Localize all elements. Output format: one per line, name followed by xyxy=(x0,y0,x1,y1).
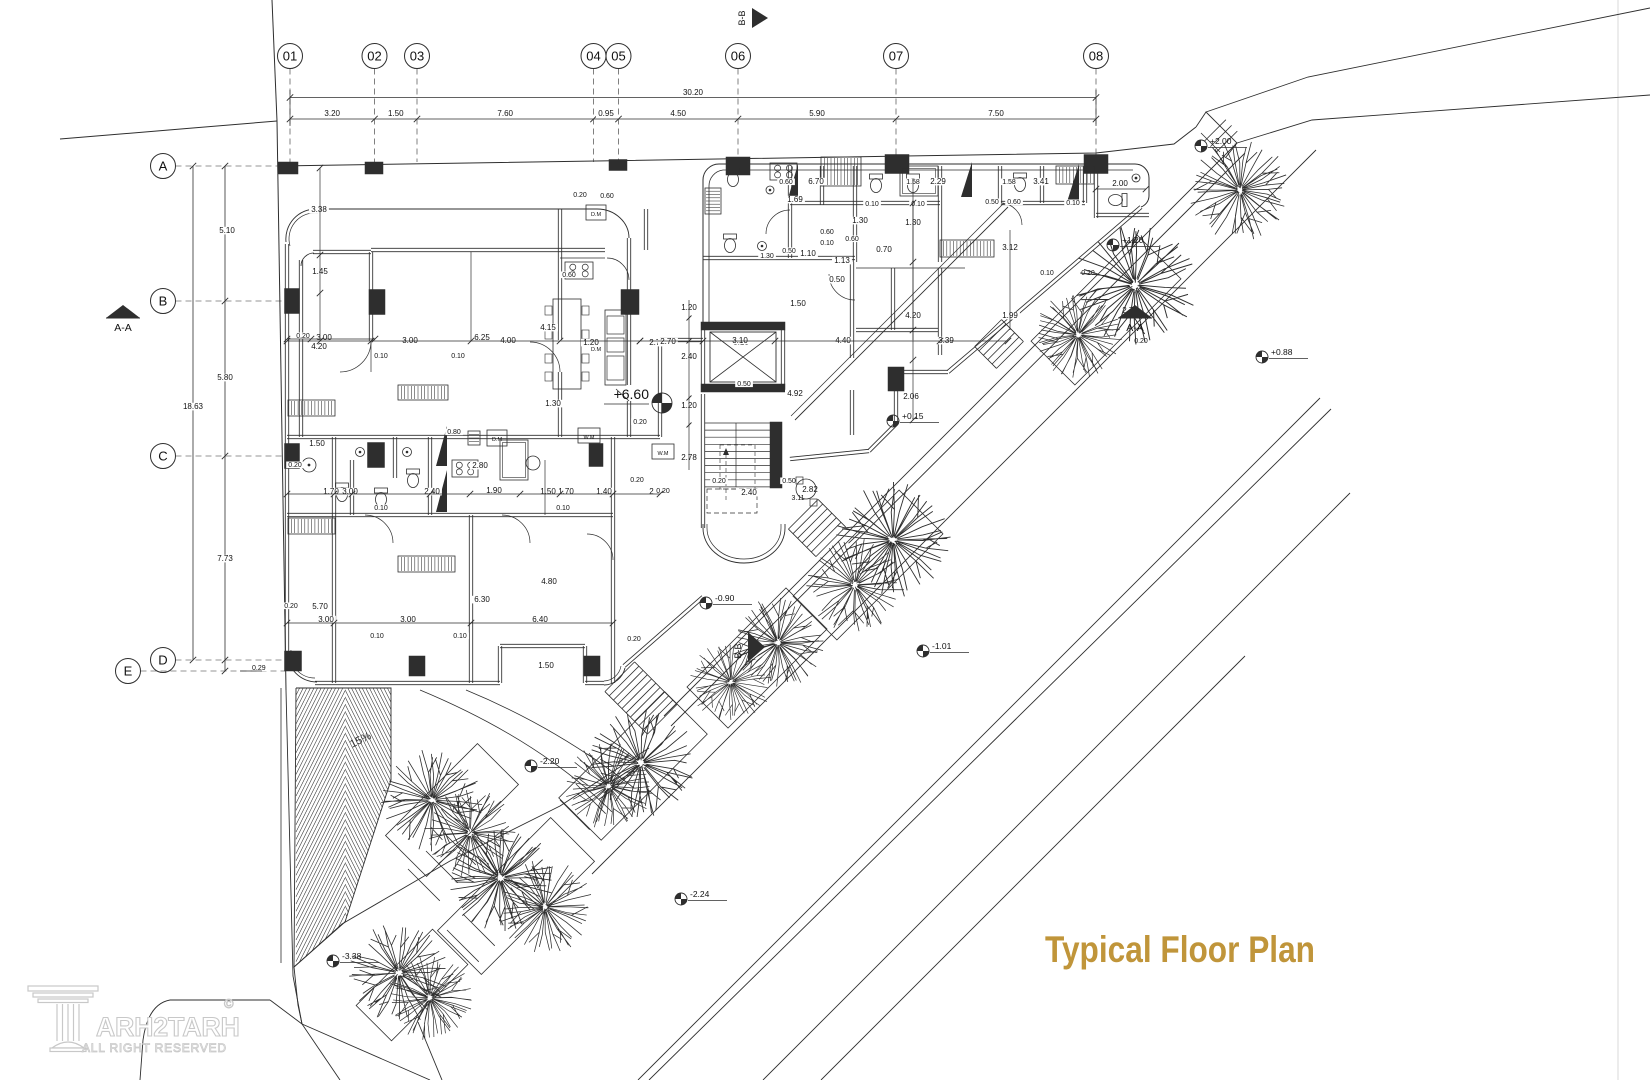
svg-text:03: 03 xyxy=(410,49,424,64)
svg-text:A-A: A-A xyxy=(114,322,132,334)
svg-text:1.50: 1.50 xyxy=(790,299,806,308)
svg-text:-3.38: -3.38 xyxy=(342,951,362,961)
svg-text:1.69: 1.69 xyxy=(787,195,803,204)
svg-text:D.M: D.M xyxy=(591,347,602,353)
svg-text:7.73: 7.73 xyxy=(217,554,233,563)
svg-text:0.50: 0.50 xyxy=(737,381,751,388)
svg-text:0.10: 0.10 xyxy=(556,505,570,512)
svg-text:0.10: 0.10 xyxy=(374,505,388,512)
svg-text:1.30: 1.30 xyxy=(852,216,868,225)
svg-text:5.90: 5.90 xyxy=(809,109,825,118)
svg-text:1.13: 1.13 xyxy=(834,256,850,265)
svg-text:1.50: 1.50 xyxy=(538,661,554,670)
svg-text:3.00: 3.00 xyxy=(402,336,418,345)
svg-text:A: A xyxy=(159,159,168,174)
svg-text:3.00: 3.00 xyxy=(342,487,358,496)
svg-text:5.70: 5.70 xyxy=(312,602,328,611)
svg-text:18.63: 18.63 xyxy=(183,402,204,411)
svg-text:0.95: 0.95 xyxy=(598,109,614,118)
svg-text:0.10: 0.10 xyxy=(1066,200,1080,207)
svg-text:02: 02 xyxy=(367,49,381,64)
svg-text:3.20: 3.20 xyxy=(324,109,340,118)
svg-text:0.60: 0.60 xyxy=(600,193,614,200)
svg-text:D.M: D.M xyxy=(591,212,602,218)
svg-text:0.20: 0.20 xyxy=(288,462,302,469)
svg-text:0.60: 0.60 xyxy=(845,236,859,243)
svg-text:1.10: 1.10 xyxy=(800,249,816,258)
svg-text:D: D xyxy=(158,653,167,668)
svg-text:+0.88: +0.88 xyxy=(1271,347,1293,357)
svg-text:0.10: 0.10 xyxy=(451,353,465,360)
svg-text:4.40: 4.40 xyxy=(835,336,851,345)
svg-text:3.41: 3.41 xyxy=(1033,177,1049,186)
svg-text:0.10: 0.10 xyxy=(370,633,384,640)
svg-text:30.20: 30.20 xyxy=(683,88,704,97)
svg-text:B-B: B-B xyxy=(733,643,743,658)
svg-text:4.50: 4.50 xyxy=(670,109,686,118)
svg-text:0.60: 0.60 xyxy=(779,179,793,186)
svg-text:5.10: 5.10 xyxy=(219,226,235,235)
svg-text:0.60: 0.60 xyxy=(820,229,834,236)
svg-text:4.15: 4.15 xyxy=(540,323,556,332)
svg-text:0.10: 0.10 xyxy=(865,201,879,208)
svg-text:W.M: W.M xyxy=(584,435,595,441)
svg-text:0.20: 0.20 xyxy=(284,603,298,610)
svg-text:08: 08 xyxy=(1089,49,1103,64)
svg-text:E: E xyxy=(124,664,133,679)
svg-text:0.80: 0.80 xyxy=(447,429,461,436)
svg-text:4.92: 4.92 xyxy=(787,389,803,398)
svg-text:-2.20: -2.20 xyxy=(540,756,560,766)
svg-text:+6.60: +6.60 xyxy=(614,386,650,402)
svg-text:3.38: 3.38 xyxy=(311,205,327,214)
svg-text:0.10: 0.10 xyxy=(1040,270,1054,277)
svg-text:-1.01: -1.01 xyxy=(932,641,952,651)
svg-text:6.70: 6.70 xyxy=(808,177,824,186)
svg-text:1.50: 1.50 xyxy=(540,487,556,496)
svg-text:1.40: 1.40 xyxy=(596,487,612,496)
svg-text:0.20: 0.20 xyxy=(712,478,726,485)
svg-text:0.60: 0.60 xyxy=(1007,199,1021,206)
svg-text:05: 05 xyxy=(611,49,625,64)
svg-text:-0.90: -0.90 xyxy=(715,593,735,603)
svg-text:Typical Floor Plan: Typical Floor Plan xyxy=(1045,929,1315,970)
svg-text:C: C xyxy=(158,449,167,464)
svg-text:2.06: 2.06 xyxy=(903,392,919,401)
svg-text:B: B xyxy=(159,294,168,309)
svg-text:+1.20: +1.20 xyxy=(1122,235,1144,245)
svg-text:W.M: W.M xyxy=(658,451,669,457)
svg-text:3.10: 3.10 xyxy=(732,336,748,345)
svg-text:1.70: 1.70 xyxy=(558,487,574,496)
svg-text:ALL RIGHT RESERVED: ALL RIGHT RESERVED xyxy=(82,1041,227,1055)
svg-text:0.20: 0.20 xyxy=(573,192,587,199)
svg-text:0.50: 0.50 xyxy=(829,275,845,284)
svg-text:0.50: 0.50 xyxy=(985,199,999,206)
svg-text:5.80: 5.80 xyxy=(217,373,233,382)
svg-text:0.60: 0.60 xyxy=(562,272,576,279)
svg-text:2.70: 2.70 xyxy=(660,337,676,346)
svg-text:4.80: 4.80 xyxy=(541,577,557,586)
svg-text:0.20: 0.20 xyxy=(630,477,644,484)
svg-text:2.29: 2.29 xyxy=(930,177,946,186)
svg-text:1.30: 1.30 xyxy=(545,399,561,408)
svg-text:+2.00: +2.00 xyxy=(1210,136,1232,146)
svg-text:04: 04 xyxy=(586,49,600,64)
svg-text:0.50: 0.50 xyxy=(782,248,796,255)
svg-text:0.10: 0.10 xyxy=(374,353,388,360)
svg-text:1.20: 1.20 xyxy=(583,338,599,347)
svg-text:1.50: 1.50 xyxy=(388,109,404,118)
svg-text:0.20: 0.20 xyxy=(633,419,647,426)
svg-text:0.20: 0.20 xyxy=(627,636,641,643)
svg-text:7.60: 7.60 xyxy=(497,109,513,118)
svg-text:0.70: 0.70 xyxy=(876,245,892,254)
svg-text:0.10: 0.10 xyxy=(820,240,834,247)
svg-text:-2.24: -2.24 xyxy=(690,889,710,899)
svg-text:+0.15: +0.15 xyxy=(902,411,924,421)
svg-text:0.10: 0.10 xyxy=(453,633,467,640)
svg-text:7.50: 7.50 xyxy=(988,109,1004,118)
svg-text:1.58: 1.58 xyxy=(1002,179,1016,186)
svg-text:2.00: 2.00 xyxy=(1112,179,1128,188)
svg-text:2.80: 2.80 xyxy=(472,461,488,470)
svg-text:B-B: B-B xyxy=(737,10,747,25)
svg-text:ARH2TARH: ARH2TARH xyxy=(96,1012,240,1042)
svg-text:1.50: 1.50 xyxy=(309,439,325,448)
svg-text:4.20: 4.20 xyxy=(311,342,327,351)
svg-text:©: © xyxy=(224,996,234,1011)
svg-text:06: 06 xyxy=(731,49,745,64)
svg-text:2.40: 2.40 xyxy=(741,488,757,497)
svg-text:0.50: 0.50 xyxy=(782,478,796,485)
svg-text:1.30: 1.30 xyxy=(760,253,774,260)
svg-text:6.30: 6.30 xyxy=(474,595,490,604)
svg-text:01: 01 xyxy=(283,49,297,64)
svg-text:A-A: A-A xyxy=(1126,322,1144,334)
svg-text:07: 07 xyxy=(889,49,903,64)
svg-text:4.00: 4.00 xyxy=(500,336,516,345)
